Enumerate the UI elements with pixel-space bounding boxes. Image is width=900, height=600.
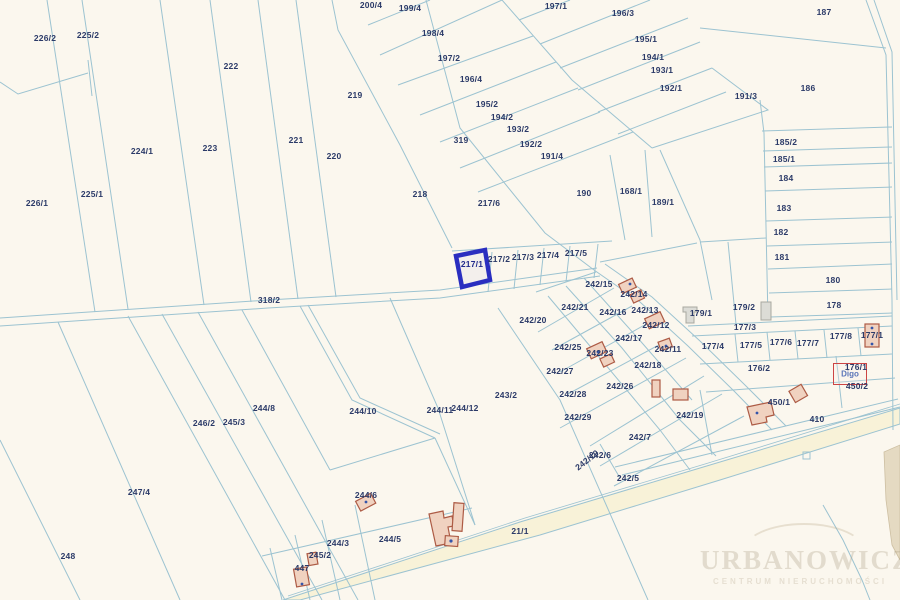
parcel-label-190[interactable]: 190 bbox=[577, 188, 592, 198]
parcel-label-177-1[interactable]: 177/1 bbox=[861, 330, 883, 340]
parcel-label-176-2[interactable]: 176/2 bbox=[748, 363, 770, 373]
parcel-label-219[interactable]: 219 bbox=[348, 90, 363, 100]
parcel-label-318-2[interactable]: 318/2 bbox=[258, 295, 280, 305]
parcel-label-244-12[interactable]: 244/12 bbox=[451, 403, 478, 413]
parcel-label-196-4[interactable]: 196/4 bbox=[460, 74, 482, 84]
parcel-label-197-2[interactable]: 197/2 bbox=[438, 53, 460, 63]
parcel-label-242-29[interactable]: 242/29 bbox=[564, 412, 591, 422]
parcel-label-244-11[interactable]: 244/11 bbox=[427, 405, 454, 415]
parcel-label-242-15[interactable]: 242/15 bbox=[585, 279, 612, 289]
parcel-label-198-4[interactable]: 198/4 bbox=[422, 28, 444, 38]
parcel-label-242-10[interactable]: 242/10 bbox=[573, 448, 601, 473]
parcel-label-242-12[interactable]: 242/12 bbox=[642, 320, 669, 330]
parcel-label-217-6[interactable]: 217/6 bbox=[478, 198, 500, 208]
parcel-label-189-1[interactable]: 189/1 bbox=[652, 197, 674, 207]
parcel-label-242-28[interactable]: 242/28 bbox=[559, 389, 586, 399]
parcel-label-246-2[interactable]: 246/2 bbox=[193, 418, 215, 428]
parcel-label-242-25[interactable]: 242/25 bbox=[554, 342, 581, 352]
parcel-label-242-23[interactable]: 242/23 bbox=[586, 348, 613, 358]
parcel-label-248[interactable]: 248 bbox=[61, 551, 76, 561]
parcel-label-177-6[interactable]: 177/6 bbox=[770, 337, 792, 347]
parcel-label-177-4[interactable]: 177/4 bbox=[702, 341, 724, 351]
parcel-label-242-14[interactable]: 242/14 bbox=[620, 289, 647, 299]
parcel-label-242-13[interactable]: 242/13 bbox=[631, 305, 658, 315]
parcel-label-200-4[interactable]: 200/4 bbox=[360, 0, 382, 10]
parcel-label-179-1[interactable]: 179/1 bbox=[690, 308, 712, 318]
parcel-label-168-1[interactable]: 168/1 bbox=[620, 186, 642, 196]
parcel-label-247-4[interactable]: 247/4 bbox=[128, 487, 150, 497]
parcel-label-192-1[interactable]: 192/1 bbox=[660, 83, 682, 93]
parcel-label-218[interactable]: 218 bbox=[413, 189, 428, 199]
parcel-label-242-26[interactable]: 242/26 bbox=[606, 381, 633, 391]
parcel-label-197-1[interactable]: 197/1 bbox=[545, 1, 567, 11]
parcel-label-217-1[interactable]: 217/1 bbox=[461, 259, 483, 269]
parcel-label-244-5[interactable]: 244/5 bbox=[379, 534, 401, 544]
parcel-label-192-2[interactable]: 192/2 bbox=[520, 139, 542, 149]
parcel-label-184[interactable]: 184 bbox=[779, 173, 794, 183]
parcel-label-199-4[interactable]: 199/4 bbox=[399, 3, 421, 13]
parcel-label-196-3[interactable]: 196/3 bbox=[612, 8, 634, 18]
parcel-label-447[interactable]: 447 bbox=[295, 563, 310, 573]
parcel-label-217-3[interactable]: 217/3 bbox=[512, 252, 534, 262]
parcel-label-242-11[interactable]: 242/11 bbox=[655, 344, 682, 354]
parcel-label-194-2[interactable]: 194/2 bbox=[491, 112, 513, 122]
parcel-label-242-19[interactable]: 242/19 bbox=[676, 410, 703, 420]
cadastral-map[interactable]: Digo 226/2225/2222221220219224/1223225/1… bbox=[0, 0, 900, 600]
parcel-label-242-7[interactable]: 242/7 bbox=[629, 432, 651, 442]
parcel-label-217-4[interactable]: 217/4 bbox=[537, 250, 559, 260]
parcel-label-223[interactable]: 223 bbox=[203, 143, 218, 153]
parcel-label-191-4[interactable]: 191/4 bbox=[541, 151, 563, 161]
parcel-label-217-5[interactable]: 217/5 bbox=[565, 248, 587, 258]
parcel-label-186[interactable]: 186 bbox=[801, 83, 816, 93]
parcel-label-178[interactable]: 178 bbox=[827, 300, 842, 310]
parcel-label-185-1[interactable]: 185/1 bbox=[773, 154, 795, 164]
parcel-label-226-2[interactable]: 226/2 bbox=[34, 33, 56, 43]
parcel-label-245-3[interactable]: 245/3 bbox=[223, 417, 245, 427]
parcel-label-179-2[interactable]: 179/2 bbox=[733, 302, 755, 312]
parcel-label-187[interactable]: 187 bbox=[817, 7, 832, 17]
parcel-label-194-1[interactable]: 194/1 bbox=[642, 52, 664, 62]
parcel-label-193-2[interactable]: 193/2 bbox=[507, 124, 529, 134]
parcel-label-242-16[interactable]: 242/16 bbox=[599, 307, 626, 317]
parcel-label-221[interactable]: 221 bbox=[289, 135, 304, 145]
parcel-label-222[interactable]: 222 bbox=[224, 61, 239, 71]
parcel-label-195-2[interactable]: 195/2 bbox=[476, 99, 498, 109]
parcel-label-185-2[interactable]: 185/2 bbox=[775, 137, 797, 147]
parcel-label-180[interactable]: 180 bbox=[826, 275, 841, 285]
parcel-label-177-8[interactable]: 177/8 bbox=[830, 331, 852, 341]
parcel-label-242-5[interactable]: 242/5 bbox=[617, 473, 639, 483]
parcel-label-319[interactable]: 319 bbox=[454, 135, 469, 145]
parcel-label-191-3[interactable]: 191/3 bbox=[735, 91, 757, 101]
parcel-label-244-8[interactable]: 244/8 bbox=[253, 403, 275, 413]
parcel-label-217-2[interactable]: 217/2 bbox=[488, 254, 510, 264]
parcel-label-244-10[interactable]: 244/10 bbox=[349, 406, 376, 416]
parcel-labels-layer: 226/2225/2222221220219224/1223225/1226/1… bbox=[0, 0, 900, 600]
parcel-label-242-17[interactable]: 242/17 bbox=[615, 333, 642, 343]
parcel-label-195-1[interactable]: 195/1 bbox=[635, 34, 657, 44]
parcel-label-220[interactable]: 220 bbox=[327, 151, 342, 161]
parcel-label-177-3[interactable]: 177/3 bbox=[734, 322, 756, 332]
parcel-label-244-3[interactable]: 244/3 bbox=[327, 538, 349, 548]
parcel-label-244-6[interactable]: 244/6 bbox=[355, 490, 377, 500]
parcel-label-242-27[interactable]: 242/27 bbox=[546, 366, 573, 376]
parcel-label-224-1[interactable]: 224/1 bbox=[131, 146, 153, 156]
parcel-label-176-1[interactable]: 176/1 bbox=[845, 362, 867, 372]
parcel-label-225-2[interactable]: 225/2 bbox=[77, 30, 99, 40]
parcel-label-183[interactable]: 183 bbox=[777, 203, 792, 213]
parcel-label-181[interactable]: 181 bbox=[775, 252, 790, 262]
parcel-label-226-1[interactable]: 226/1 bbox=[26, 198, 48, 208]
parcel-label-193-1[interactable]: 193/1 bbox=[651, 65, 673, 75]
parcel-label-243-2[interactable]: 243/2 bbox=[495, 390, 517, 400]
parcel-label-21-1[interactable]: 21/1 bbox=[511, 526, 528, 536]
parcel-label-177-7[interactable]: 177/7 bbox=[797, 338, 819, 348]
parcel-label-225-1[interactable]: 225/1 bbox=[81, 189, 103, 199]
parcel-label-450-2[interactable]: 450/2 bbox=[846, 381, 868, 391]
parcel-label-242-21[interactable]: 242/21 bbox=[561, 302, 588, 312]
parcel-label-182[interactable]: 182 bbox=[774, 227, 789, 237]
parcel-label-450-1[interactable]: 450/1 bbox=[768, 397, 790, 407]
parcel-label-242-20[interactable]: 242/20 bbox=[519, 315, 546, 325]
parcel-label-242-18[interactable]: 242/18 bbox=[634, 360, 661, 370]
parcel-label-177-5[interactable]: 177/5 bbox=[740, 340, 762, 350]
parcel-label-245-2[interactable]: 245/2 bbox=[309, 550, 331, 560]
parcel-label-410[interactable]: 410 bbox=[810, 414, 825, 424]
